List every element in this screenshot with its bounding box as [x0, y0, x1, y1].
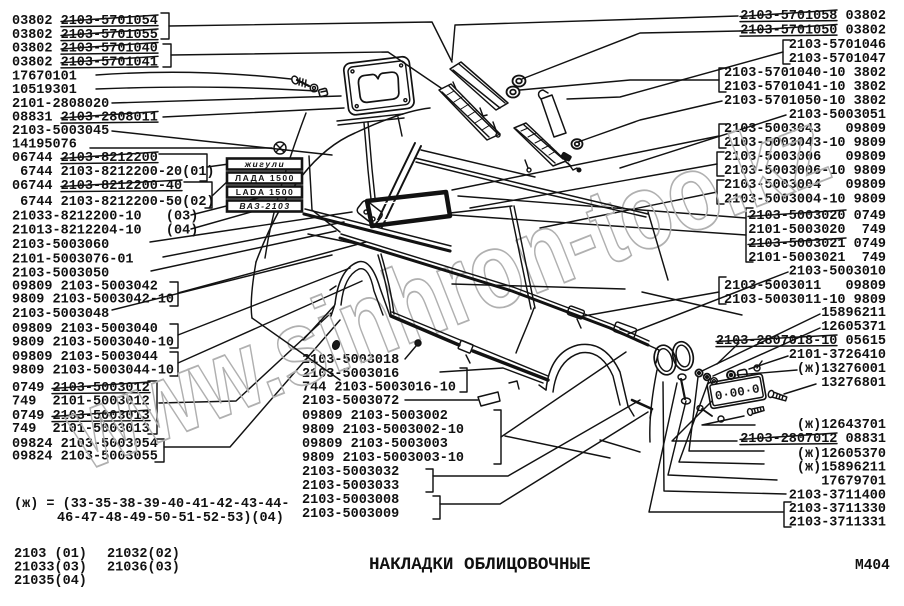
svg-text:ЛАДА 1500: ЛАДА 1500 [235, 173, 295, 183]
svg-text:2103-5701046: 2103-5701046 [789, 38, 886, 53]
svg-text:2101-5003076-01: 2101-5003076-01 [12, 253, 134, 268]
svg-text:жигули: жигули [244, 159, 286, 169]
svg-text:НАКЛАДКИ ОБЛИЦОВОЧНЫЕ: НАКЛАДКИ ОБЛИЦОВОЧНЫЕ [369, 555, 591, 575]
svg-text:LADA 1500: LADA 1500 [236, 187, 295, 197]
svg-text:6744 2103-8212200-50(02): 6744 2103-8212200-50(02) [12, 195, 215, 210]
svg-text:(ж)13276001: (ж)13276001 [797, 362, 886, 377]
svg-text:2103-5003011 09809: 2103-5003011 09809 [724, 279, 886, 294]
svg-text:2103-3711331: 2103-3711331 [789, 516, 886, 531]
svg-text:21036(03): 21036(03) [107, 561, 180, 576]
svg-text:9809 2103-5003002-10: 9809 2103-5003002-10 [302, 423, 464, 438]
svg-text:46-47-48-49-50-51-52-53)(04): 46-47-48-49-50-51-52-53)(04) [57, 511, 284, 526]
svg-text:2103-5003048: 2103-5003048 [12, 307, 109, 322]
svg-text:2103-5701041-10 3802: 2103-5701041-10 3802 [724, 80, 886, 95]
svg-text:15896211: 15896211 [821, 306, 886, 321]
svg-text:(ж)15896211: (ж)15896211 [797, 461, 886, 476]
svg-text:2101-3726410: 2101-3726410 [789, 348, 886, 363]
svg-text:(ж)12643701: (ж)12643701 [797, 418, 886, 433]
svg-text:2103-5701047: 2103-5701047 [789, 52, 886, 67]
svg-text:21013-8212204-10 (04): 21013-8212204-10 (04) [12, 224, 198, 239]
svg-text:ВАЗ-2103: ВАЗ-2103 [239, 201, 290, 211]
svg-text:09809 2103-5003002: 09809 2103-5003002 [302, 409, 448, 424]
svg-text:21033-8212200-10 (03): 21033-8212200-10 (03) [12, 210, 198, 225]
svg-text:17679701: 17679701 [821, 475, 886, 490]
svg-text:2103-5003009: 2103-5003009 [302, 507, 399, 522]
svg-text:13276801: 13276801 [821, 376, 886, 391]
svg-text:М404: М404 [855, 558, 890, 574]
svg-text:21035(04): 21035(04) [14, 574, 87, 589]
svg-text:10519301: 10519301 [12, 83, 77, 98]
svg-text:2103-5003010: 2103-5003010 [789, 265, 886, 280]
svg-text:2103-5003060: 2103-5003060 [12, 238, 109, 253]
svg-text:(ж) = (33-35-38-39-40-41-42-43: (ж) = (33-35-38-39-40-41-42-43-44- [14, 497, 289, 512]
svg-text:2103-5003033: 2103-5003033 [302, 479, 399, 494]
svg-text:2103-5003032: 2103-5003032 [302, 465, 399, 480]
svg-text:9809 2103-5003003-10: 9809 2103-5003003-10 [302, 451, 464, 466]
svg-text:2103-5003008: 2103-5003008 [302, 493, 399, 508]
svg-text:2103-5701040-10 3802: 2103-5701040-10 3802 [724, 66, 886, 81]
svg-text:6744 2103-8212200-20(01): 6744 2103-8212200-20(01) [12, 165, 215, 180]
svg-text:09809 2103-5003003: 09809 2103-5003003 [302, 437, 448, 452]
svg-text:12605371: 12605371 [821, 320, 886, 335]
